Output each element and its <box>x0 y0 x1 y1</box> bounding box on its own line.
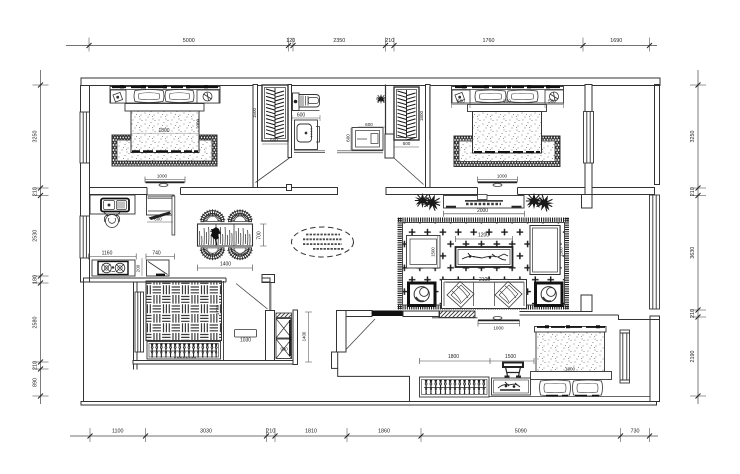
svg-text:200: 200 <box>136 264 141 272</box>
svg-text:3030: 3030 <box>200 429 212 435</box>
svg-text:1800: 1800 <box>419 110 424 121</box>
svg-text:740: 740 <box>152 251 161 257</box>
svg-text:1860: 1860 <box>378 429 390 435</box>
svg-text:5090: 5090 <box>515 429 527 435</box>
svg-text:500: 500 <box>548 99 556 104</box>
svg-text:1000: 1000 <box>497 174 508 179</box>
svg-text:1690: 1690 <box>610 38 622 44</box>
svg-text:1160: 1160 <box>102 251 113 257</box>
svg-text:1800: 1800 <box>448 354 459 360</box>
svg-text:1810: 1810 <box>305 429 317 435</box>
svg-text:600: 600 <box>403 141 411 146</box>
svg-text:210: 210 <box>266 429 275 435</box>
svg-text:2530: 2530 <box>33 230 39 242</box>
svg-text:700: 700 <box>257 231 263 240</box>
svg-text:2190: 2190 <box>690 351 696 363</box>
svg-text:2000: 2000 <box>196 118 201 129</box>
svg-text:2000: 2000 <box>477 208 488 214</box>
svg-text:210: 210 <box>385 38 394 44</box>
svg-text:1500: 1500 <box>559 247 564 257</box>
svg-text:2100: 2100 <box>479 277 490 283</box>
svg-text:5000: 5000 <box>183 38 195 44</box>
svg-text:3250: 3250 <box>690 131 696 143</box>
svg-text:1000: 1000 <box>493 326 504 331</box>
svg-text:1500: 1500 <box>505 354 516 360</box>
svg-text:1780: 1780 <box>215 304 220 315</box>
svg-text:3250: 3250 <box>33 131 39 143</box>
svg-text:730: 730 <box>631 429 640 435</box>
svg-text:2580: 2580 <box>33 317 39 329</box>
svg-text:1200: 1200 <box>478 233 489 239</box>
svg-text:1100: 1100 <box>112 429 124 435</box>
svg-text:600: 600 <box>346 134 351 142</box>
svg-text:1030: 1030 <box>240 338 251 344</box>
svg-text:600: 600 <box>297 113 306 119</box>
svg-text:1800: 1800 <box>565 367 576 372</box>
svg-text:600: 600 <box>365 122 373 127</box>
svg-text:210: 210 <box>690 187 696 196</box>
svg-text:210: 210 <box>33 187 39 196</box>
svg-text:890: 890 <box>33 378 39 387</box>
svg-text:3630: 3630 <box>690 247 696 259</box>
svg-text:1000: 1000 <box>157 174 168 179</box>
svg-text:1400: 1400 <box>302 331 307 341</box>
svg-text:180: 180 <box>33 275 39 284</box>
svg-text:210: 210 <box>33 361 39 370</box>
svg-text:600: 600 <box>270 138 278 143</box>
svg-text:1400: 1400 <box>220 262 231 268</box>
svg-text:900: 900 <box>280 347 288 352</box>
svg-text:120: 120 <box>286 38 295 44</box>
svg-text:210: 210 <box>690 309 696 318</box>
svg-text:1500: 1500 <box>431 247 436 257</box>
svg-text:1760: 1760 <box>483 38 495 44</box>
svg-text:1500: 1500 <box>252 107 257 118</box>
svg-text:800: 800 <box>503 99 511 104</box>
svg-text:600: 600 <box>154 217 162 222</box>
svg-text:2350: 2350 <box>333 38 345 44</box>
svg-text:500: 500 <box>457 99 465 104</box>
